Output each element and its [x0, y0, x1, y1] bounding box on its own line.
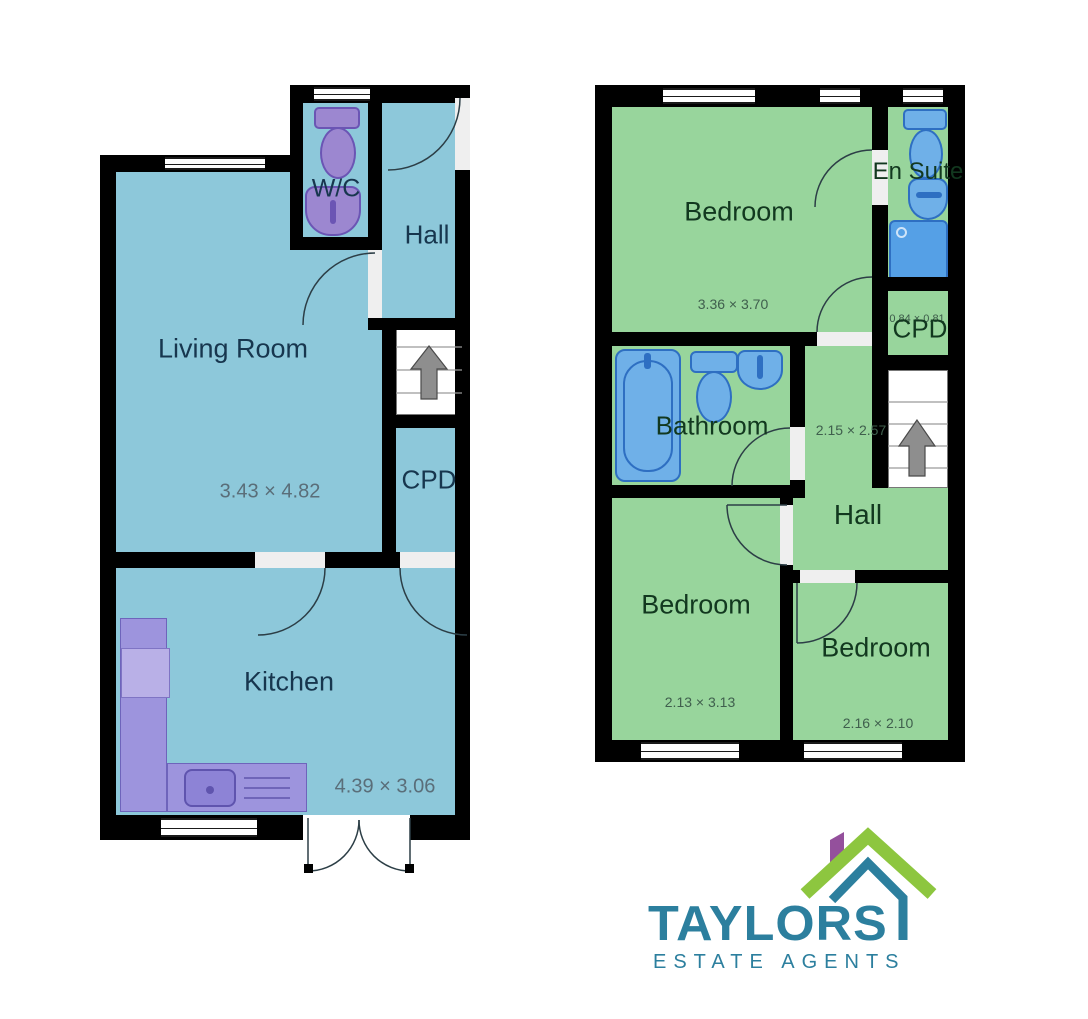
stove-icon: [121, 648, 170, 698]
logo-tagline: ESTATE AGENTS: [653, 951, 906, 974]
wall: [100, 155, 116, 840]
door-opening: [368, 250, 382, 318]
wall: [100, 815, 470, 840]
wc-label: W/C: [312, 175, 361, 204]
bedroom2-dimensions: 2.13 × 3.13: [665, 694, 735, 710]
wall: [800, 332, 817, 346]
door-opening: [255, 552, 325, 568]
window: [314, 87, 370, 101]
door-opening: [400, 552, 455, 568]
cpd-label-ground: CPD: [402, 465, 457, 496]
wall: [872, 205, 888, 370]
hall-label: Hall: [405, 220, 450, 251]
wall: [872, 355, 948, 370]
wall: [888, 277, 948, 291]
wall: [290, 85, 303, 250]
wall: [793, 570, 800, 583]
wall: [790, 346, 805, 427]
floorplan-canvas: W/C Hall Living Room 3.43 × 4.82 CPD Kit…: [0, 0, 1088, 1019]
bedroom3-label: Bedroom: [821, 633, 931, 664]
wall: [455, 85, 470, 840]
faucet-icon: [757, 355, 763, 379]
faucet-icon: [916, 192, 942, 198]
door-hinges: [304, 864, 414, 873]
bedroom1-label: Bedroom: [684, 197, 794, 228]
wall: [325, 552, 400, 568]
hall-label-first: Hall: [834, 499, 882, 531]
window: [903, 88, 943, 104]
window: [804, 742, 902, 760]
bedroom2-label: Bedroom: [641, 590, 751, 621]
wall: [368, 85, 382, 250]
wall: [612, 485, 793, 498]
toilet-bowl-icon: [320, 127, 356, 179]
door-opening: [303, 815, 410, 840]
bedroom3-dimensions: 2.16 × 2.10: [843, 715, 913, 731]
window: [663, 88, 755, 104]
door-opening: [780, 505, 793, 565]
drainer-lines: [244, 797, 290, 799]
bedroom1-dimensions: 3.36 × 3.70: [698, 296, 768, 312]
wall: [595, 85, 612, 762]
window: [161, 818, 257, 837]
drainer-lines: [244, 777, 290, 779]
toilet-icon: [690, 351, 738, 373]
wall: [382, 318, 396, 568]
wall: [855, 570, 948, 583]
wall: [780, 565, 793, 740]
living-room-dimensions: 3.43 × 4.82: [220, 481, 321, 504]
cpd-label-first: CPD: [893, 314, 948, 345]
shower-drain-icon: [896, 227, 907, 238]
en-suite-label: En Suite: [873, 158, 964, 186]
wall: [290, 237, 382, 250]
stairs-first: [888, 370, 948, 488]
exterior-cutout: [100, 85, 290, 155]
wall: [872, 107, 888, 150]
window: [641, 742, 739, 760]
hall-dimensions: 2.15 × 2.57: [816, 422, 886, 438]
toilet-icon: [314, 107, 360, 129]
wall: [612, 332, 800, 346]
kitchen-label: Kitchen: [244, 667, 334, 698]
logo-chimney: [830, 832, 844, 867]
stairs-ground: [396, 325, 462, 415]
bathroom-label: Bathroom: [656, 411, 769, 442]
kitchen-dimensions: 4.39 × 3.06: [335, 776, 436, 799]
toilet-icon: [903, 109, 947, 130]
faucet-icon: [206, 786, 214, 794]
wall: [948, 85, 965, 762]
logo-wordmark: TAYLORS: [648, 896, 888, 952]
wall: [780, 498, 793, 505]
door-opening: [455, 98, 470, 170]
wall: [116, 552, 255, 568]
door-opening: [800, 570, 855, 583]
drainer-lines: [244, 787, 290, 789]
faucet-icon: [644, 353, 651, 369]
door-opening: [790, 427, 805, 480]
window: [165, 157, 265, 170]
living-room-label: Living Room: [158, 334, 308, 365]
door-opening: [817, 332, 872, 346]
faucet-icon: [330, 200, 336, 224]
wall: [382, 415, 462, 428]
window: [820, 88, 860, 104]
